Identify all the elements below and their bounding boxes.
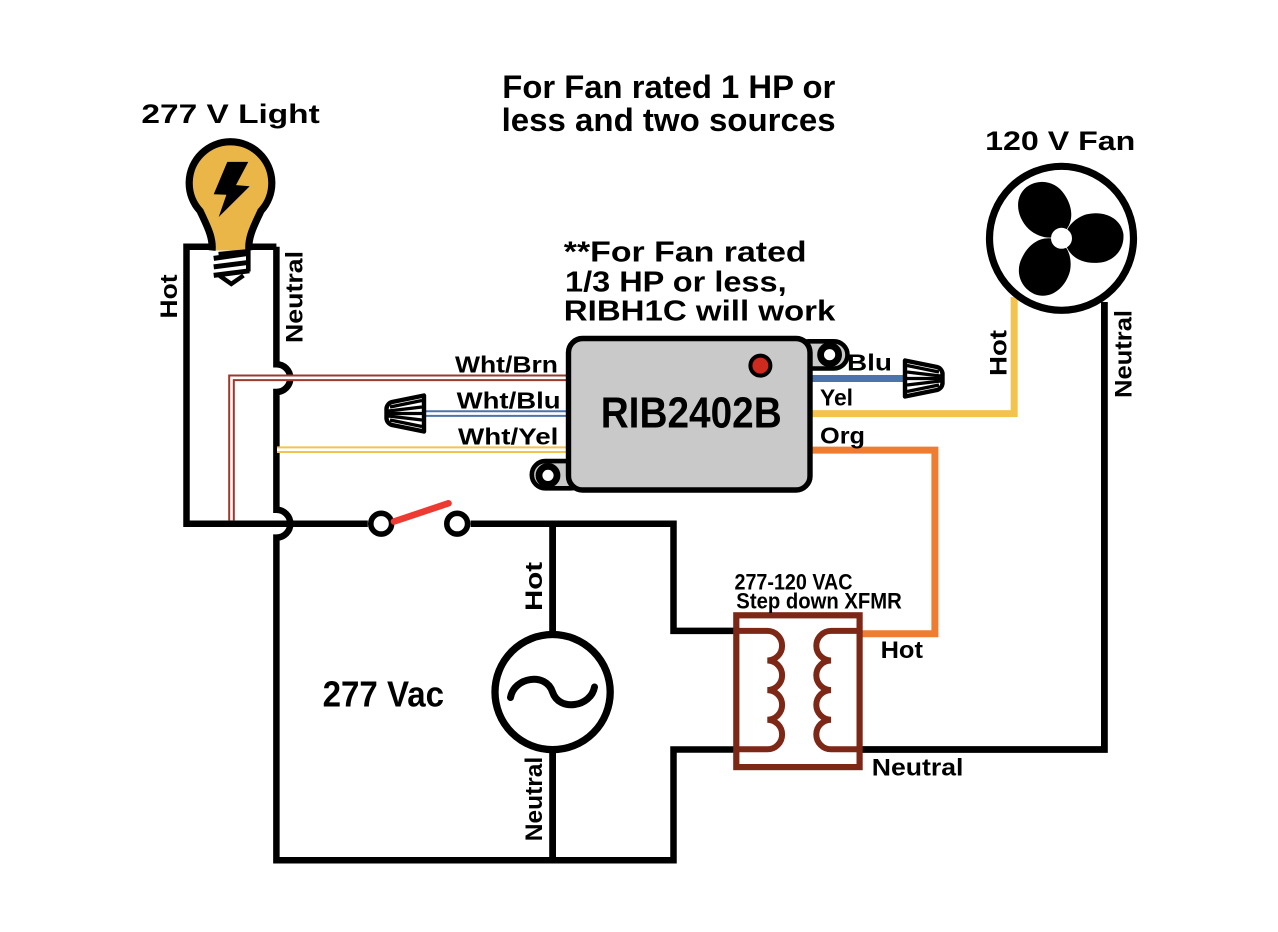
svg-text:1/3 HP or less,: 1/3 HP or less, <box>565 266 787 298</box>
svg-text:Wht/Brn: Wht/Brn <box>455 352 558 378</box>
svg-text:**For Fan rated: **For Fan rated <box>564 236 807 268</box>
svg-text:277 Vac: 277 Vac <box>323 674 444 715</box>
svg-text:Neutral: Neutral <box>521 757 548 842</box>
svg-text:Org: Org <box>820 422 865 448</box>
svg-text:277 V Light: 277 V Light <box>141 99 319 129</box>
svg-text:Blu: Blu <box>847 349 892 375</box>
svg-text:Neutral: Neutral <box>1111 310 1138 398</box>
svg-text:Hot: Hot <box>156 274 183 318</box>
svg-text:Neutral: Neutral <box>282 251 309 343</box>
svg-text:Wht/Blu: Wht/Blu <box>457 388 561 414</box>
svg-text:RIBH1C will work: RIBH1C will work <box>564 296 837 328</box>
svg-text:Neutral: Neutral <box>872 755 964 782</box>
svg-text:Step down XFMR: Step down XFMR <box>736 589 902 614</box>
svg-text:Yel: Yel <box>820 385 853 411</box>
svg-text:Hot: Hot <box>986 330 1013 376</box>
svg-text:Hot: Hot <box>881 637 923 664</box>
svg-text:Hot: Hot <box>521 562 548 611</box>
svg-text:Wht/Yel: Wht/Yel <box>458 424 558 450</box>
svg-text:For Fan rated 1 HP or: For Fan rated 1 HP or <box>502 69 835 105</box>
svg-text:120 V Fan: 120 V Fan <box>985 126 1135 156</box>
svg-text:RIB2402B: RIB2402B <box>601 389 782 438</box>
svg-text:less and two sources: less and two sources <box>502 102 836 138</box>
